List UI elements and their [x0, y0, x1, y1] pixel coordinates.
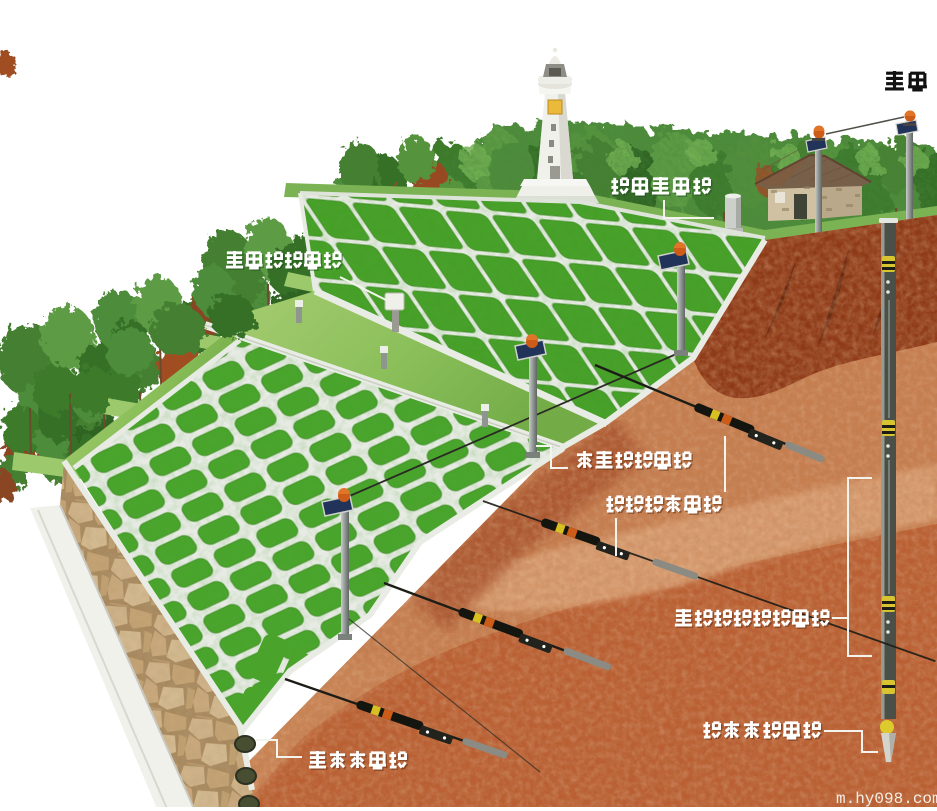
svg-text:m.hy098.com: m.hy098.com	[836, 790, 937, 808]
